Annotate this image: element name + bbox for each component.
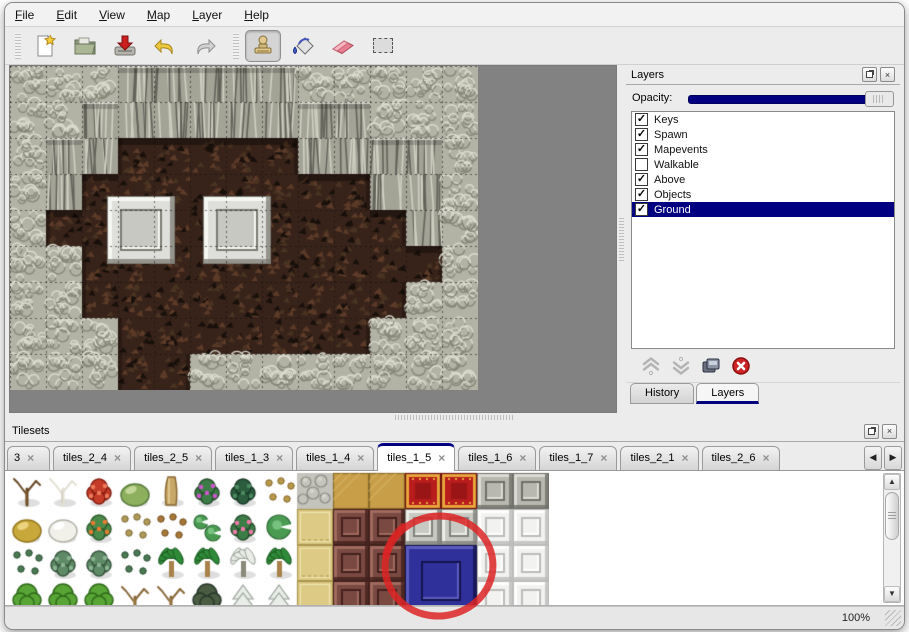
layer-label: Spawn — [654, 129, 688, 141]
tab-label: 3 — [14, 452, 20, 464]
layers-panel: Layers × Opacity: ✓Keys✓Spawn✓MapeventsW… — [626, 65, 900, 413]
layer-panel-tabs: HistoryLayers — [626, 383, 900, 413]
app-window: FileEditViewMapLayerHelp — [4, 2, 905, 630]
undo-button[interactable] — [147, 30, 183, 62]
vertical-splitter[interactable] — [617, 65, 626, 413]
scrollbar-track[interactable] — [884, 542, 900, 586]
tab-scroll-arrows: ◀ ▶ — [862, 446, 902, 470]
save-map-button[interactable] — [107, 30, 143, 62]
scroll-down-button[interactable]: ▼ — [884, 586, 900, 602]
down-arrow-icon: ▼ — [888, 589, 896, 598]
close-tab-icon[interactable]: × — [763, 453, 770, 463]
open-folder-icon — [72, 33, 98, 59]
toolbar-grip[interactable] — [15, 33, 21, 59]
close-tab-icon[interactable]: × — [519, 453, 526, 463]
layer-label: Walkable — [654, 159, 699, 171]
float-panel-button[interactable] — [862, 67, 877, 82]
tab-history[interactable]: History — [630, 383, 694, 404]
opacity-slider-track — [688, 95, 890, 104]
redo-button[interactable] — [187, 30, 223, 62]
scroll-tabs-right-button[interactable]: ▶ — [884, 446, 902, 470]
move-layer-down-button[interactable] — [666, 354, 696, 378]
layer-checkbox[interactable]: ✓ — [635, 188, 648, 201]
tab-label: tiles_2_1 — [630, 452, 674, 464]
tileset-tabs: 3×tiles_2_4×tiles_2_5×tiles_1_3×tiles_1_… — [5, 442, 904, 471]
tileset-tab-tiles_1_7[interactable]: tiles_1_7× — [539, 446, 617, 470]
menu-view[interactable]: View — [99, 8, 125, 22]
tab-label: tiles_1_4 — [306, 452, 350, 464]
tab-label: tiles_1_3 — [225, 452, 269, 464]
layer-row-objects[interactable]: ✓Objects — [632, 187, 894, 202]
stamp-icon — [250, 33, 276, 59]
status-bar: 100% — [5, 606, 904, 629]
chevron-down-icon — [670, 356, 692, 376]
left-arrow-icon: ◀ — [870, 452, 877, 463]
toolbar-grip-2[interactable] — [233, 33, 239, 59]
select-tool-button[interactable] — [365, 30, 401, 62]
delete-icon — [730, 356, 752, 376]
menu-file[interactable]: File — [15, 8, 34, 22]
menu-edit[interactable]: Edit — [56, 8, 77, 22]
tilesets-panel: Tilesets × 3×tiles_2_4×tiles_2_5×tiles_1… — [5, 422, 904, 606]
new-map-button[interactable] — [27, 30, 63, 62]
layer-list: ✓Keys✓Spawn✓MapeventsWalkable✓Above✓Obje… — [631, 111, 895, 349]
tab-layers[interactable]: Layers — [696, 383, 759, 404]
zoom-level: 100% — [842, 612, 870, 624]
tileset-tab-tiles_1_3[interactable]: tiles_1_3× — [215, 446, 293, 470]
layer-label: Above — [654, 174, 685, 186]
new-file-icon — [32, 33, 58, 59]
layer-row-above[interactable]: ✓Above — [632, 172, 894, 187]
tileset-content[interactable]: ▲ ▼ — [5, 471, 904, 606]
horizontal-splitter[interactable] — [5, 413, 904, 422]
close-tab-icon[interactable]: × — [114, 453, 121, 463]
map-canvas[interactable] — [10, 66, 478, 390]
undo-icon — [152, 33, 178, 59]
float-panel-button[interactable] — [864, 424, 879, 439]
layer-label: Ground — [654, 204, 691, 216]
layers-panel-title: Layers — [631, 69, 859, 81]
close-tab-icon[interactable]: × — [27, 453, 34, 463]
thumb-grip — [888, 512, 896, 519]
layer-row-mapevents[interactable]: ✓Mapevents — [632, 142, 894, 157]
close-tab-icon[interactable]: × — [438, 453, 445, 463]
opacity-row: Opacity: — [626, 85, 900, 111]
close-icon: × — [887, 426, 892, 436]
tileset-tab-3[interactable]: 3× — [7, 446, 50, 470]
main-area: Layers × Opacity: ✓Keys✓Spawn✓MapeventsW… — [5, 65, 904, 413]
tileset-tab-tiles_2_6[interactable]: tiles_2_6× — [702, 446, 780, 470]
menu-bar: FileEditViewMapLayerHelp — [5, 3, 904, 27]
float-icon — [868, 428, 875, 435]
delete-layer-button[interactable] — [726, 354, 756, 378]
layer-label: Mapevents — [654, 144, 708, 156]
right-arrow-icon: ▶ — [890, 452, 897, 463]
eraser-icon — [329, 33, 357, 59]
tab-label: tiles_2_6 — [712, 452, 756, 464]
map-viewport[interactable] — [9, 65, 617, 413]
up-arrow-icon: ▲ — [888, 477, 896, 486]
close-tab-icon[interactable]: × — [195, 453, 202, 463]
tileset-tab-tiles_1_4[interactable]: tiles_1_4× — [296, 446, 374, 470]
close-panel-button[interactable]: × — [880, 67, 895, 82]
tab-label: tiles_1_7 — [549, 452, 593, 464]
splitter-grip — [619, 217, 624, 261]
scroll-tabs-left-button[interactable]: ◀ — [864, 446, 882, 470]
stamp-tool-button[interactable] — [245, 30, 281, 62]
close-icon: × — [885, 70, 890, 80]
tileset-scrollbar[interactable]: ▲ ▼ — [883, 473, 901, 603]
tileset-canvas[interactable] — [9, 471, 549, 605]
layer-row-ground[interactable]: ✓Ground — [632, 202, 894, 217]
float-icon — [866, 71, 873, 78]
close-panel-button[interactable]: × — [882, 424, 897, 439]
tab-label: tiles_1_5 — [387, 452, 431, 464]
fill-tool-button[interactable] — [285, 30, 321, 62]
close-tab-icon[interactable]: × — [600, 453, 607, 463]
scroll-up-button[interactable]: ▲ — [884, 474, 900, 490]
layer-row-spawn[interactable]: ✓Spawn — [632, 127, 894, 142]
layer-checkbox[interactable] — [635, 158, 648, 171]
tab-label: tiles_2_5 — [144, 452, 188, 464]
move-layer-up-button[interactable] — [636, 354, 666, 378]
opacity-slider[interactable] — [688, 90, 894, 106]
duplicate-layer-button[interactable] — [696, 354, 726, 378]
toolbar — [5, 27, 904, 65]
tileset-tab-tiles_2_1[interactable]: tiles_2_1× — [620, 446, 698, 470]
eraser-tool-button[interactable] — [325, 30, 361, 62]
tab-label: tiles_1_6 — [468, 452, 512, 464]
redo-icon — [192, 33, 218, 59]
layer-row-walkable[interactable]: Walkable — [632, 157, 894, 172]
tileset-tab-tiles_2_4[interactable]: tiles_2_4× — [53, 446, 131, 470]
layer-checkbox[interactable]: ✓ — [635, 173, 648, 186]
chevron-up-icon — [640, 356, 662, 376]
layer-checkbox[interactable]: ✓ — [635, 203, 648, 216]
paint-bucket-icon — [290, 33, 316, 59]
menu-layer[interactable]: Layer — [192, 8, 222, 22]
tilesets-panel-header: Tilesets × — [5, 422, 904, 442]
opacity-label: Opacity: — [632, 92, 688, 104]
save-icon — [112, 33, 138, 59]
open-map-button[interactable] — [67, 30, 103, 62]
menu-map[interactable]: Map — [147, 8, 170, 22]
splitter-grip — [395, 415, 515, 420]
close-tab-icon[interactable]: × — [681, 453, 688, 463]
close-tab-icon[interactable]: × — [357, 453, 364, 463]
tab-label: tiles_2_4 — [63, 452, 107, 464]
layer-checkbox[interactable]: ✓ — [635, 143, 648, 156]
tileset-tab-tiles_2_5[interactable]: tiles_2_5× — [134, 446, 212, 470]
layer-toolbar — [626, 349, 900, 383]
layer-label: Keys — [654, 114, 678, 126]
scrollbar-thumb[interactable] — [885, 492, 899, 540]
duplicate-icon — [700, 356, 722, 376]
tilesets-panel-title: Tilesets — [12, 425, 861, 437]
layers-panel-header: Layers × — [626, 65, 900, 85]
selection-icon — [373, 38, 393, 53]
layer-checkbox[interactable]: ✓ — [635, 113, 648, 126]
layer-checkbox[interactable]: ✓ — [635, 128, 648, 141]
opacity-slider-handle[interactable] — [865, 91, 894, 107]
layer-row-keys[interactable]: ✓Keys — [632, 112, 894, 127]
layer-label: Objects — [654, 189, 691, 201]
close-tab-icon[interactable]: × — [276, 453, 283, 463]
menu-help[interactable]: Help — [244, 8, 269, 22]
tileset-tab-tiles_1_6[interactable]: tiles_1_6× — [458, 446, 536, 470]
resize-grip[interactable] — [885, 610, 901, 626]
tileset-tab-tiles_1_5[interactable]: tiles_1_5× — [377, 443, 455, 471]
